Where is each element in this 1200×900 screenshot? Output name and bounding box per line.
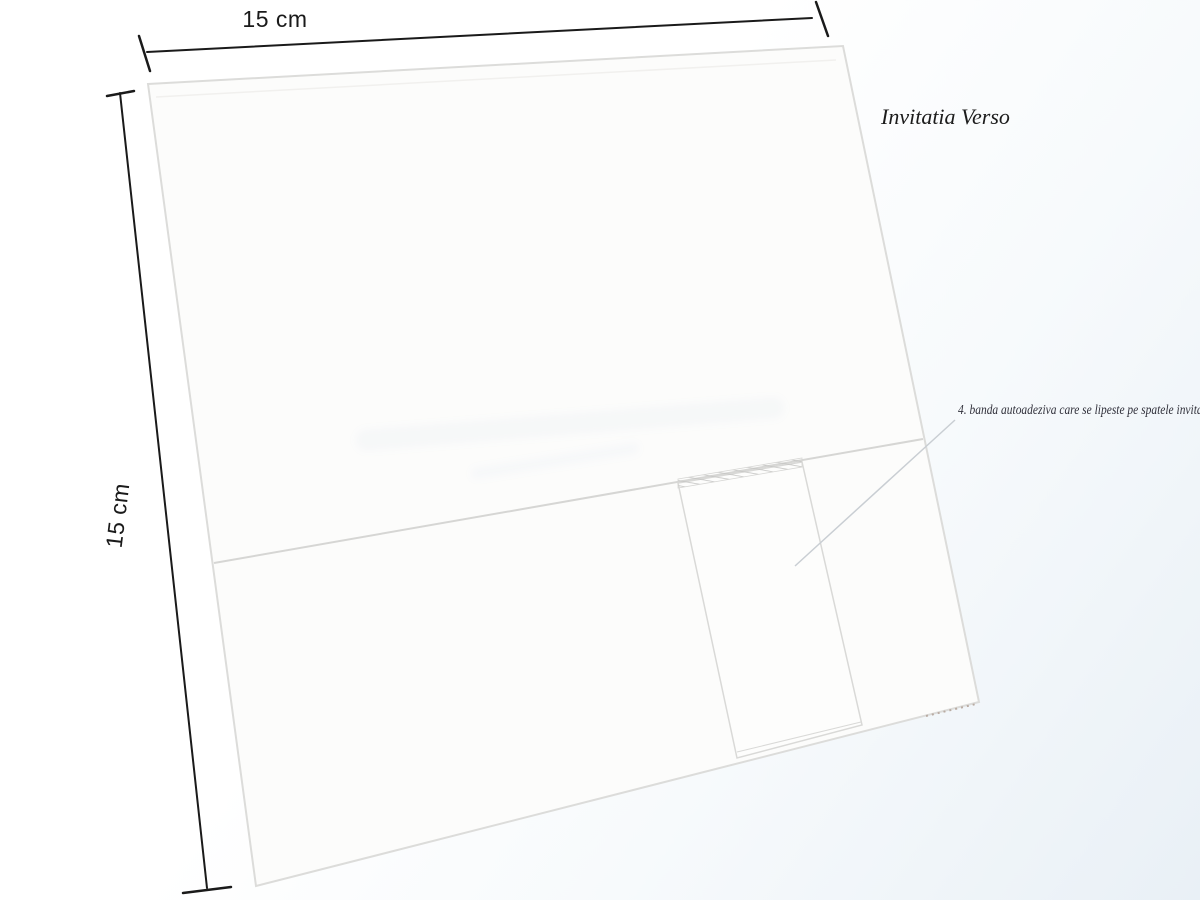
diagram-canvas: 15 cm 15 cm Invitatia Verso 4. banda aut… xyxy=(0,0,1200,900)
invitation-sheet-outline xyxy=(148,46,979,886)
diagram-title: Invitatia Verso xyxy=(881,104,1010,130)
top-dimension-tick-left xyxy=(139,36,150,71)
adhesive-band-annotation: 4. banda autoadeziva care se lipeste pe … xyxy=(958,402,1200,418)
top-dimension-tick-right xyxy=(816,2,828,36)
top-dimension-label: 15 cm xyxy=(225,6,325,33)
invitation-back-diagram xyxy=(0,0,1200,900)
